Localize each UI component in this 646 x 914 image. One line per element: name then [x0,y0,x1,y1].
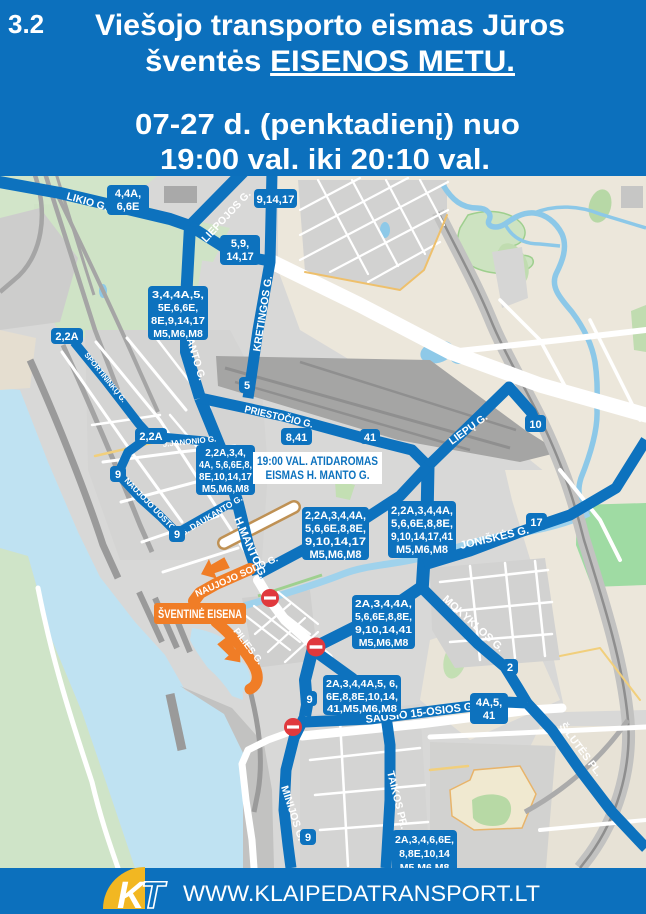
svg-text:M5,M6,M8: M5,M6,M8 [396,544,448,556]
svg-text:6,6E: 6,6E [117,201,140,213]
svg-text:M5,M6,M8: M5,M6,M8 [153,328,203,340]
svg-text:5,6,6E,8,8E,: 5,6,6E,8,8E, [305,523,366,535]
svg-text:8,8E,10,14: 8,8E,10,14 [399,848,450,860]
svg-text:8E,9,14,17: 8E,9,14,17 [151,315,205,327]
svg-text:EISMAS H. MANTO G.: EISMAS H. MANTO G. [266,470,370,482]
svg-text:5,6,6E,8,8E,: 5,6,6E,8,8E, [391,518,453,530]
svg-text:2A,3,4,4A,: 2A,3,4,4A, [355,598,412,610]
svg-text:2,2A: 2,2A [55,331,78,343]
svg-text:9,10,14,17: 9,10,14,17 [305,536,366,548]
svg-text:2A,3,4,6,6E,: 2A,3,4,6,6E, [395,834,454,846]
svg-text:ŠVENTINĖ EISENA: ŠVENTINĖ EISENA [158,606,242,621]
svg-text:T: T [141,875,167,914]
svg-text:8,41: 8,41 [286,432,307,444]
svg-text:2,2A,3,4,: 2,2A,3,4, [205,448,246,459]
svg-text:2,2A,3,4,4A,: 2,2A,3,4,4A, [391,505,453,517]
svg-text:5,6,6E,8,8E,: 5,6,6E,8,8E, [355,611,412,623]
svg-text:šventės EISENOS METU.: šventės EISENOS METU. [145,45,515,78]
svg-text:9: 9 [115,469,121,481]
svg-text:17: 17 [530,517,542,529]
svg-text:41: 41 [483,710,495,722]
svg-text:3.2: 3.2 [8,9,44,39]
svg-text:4,4A,: 4,4A, [115,188,141,200]
svg-text:14,17: 14,17 [226,251,254,263]
svg-text:9: 9 [306,694,312,706]
svg-text:19:00 val. iki 20:10 val.: 19:00 val. iki 20:10 val. [160,144,490,176]
svg-text:2: 2 [507,662,513,674]
svg-text:5: 5 [244,380,250,392]
svg-text:2,2A: 2,2A [139,431,162,443]
svg-text:M5,M6,M8: M5,M6,M8 [310,549,362,561]
svg-text:WWW.KLAIPEDATRANSPORT.LT: WWW.KLAIPEDATRANSPORT.LT [183,881,540,906]
svg-text:Viešojo transporto eismas Jūro: Viešojo transporto eismas Jūros [95,9,565,42]
svg-text:41: 41 [364,432,376,444]
svg-text:8E,10,14,17: 8E,10,14,17 [199,472,252,483]
svg-text:6E,8,8E,10,14,: 6E,8,8E,10,14, [326,691,398,703]
svg-text:41,M5,M6,M8: 41,M5,M6,M8 [327,703,397,715]
svg-text:19:00 VAL. ATIDAROMAS: 19:00 VAL. ATIDAROMAS [257,456,378,468]
svg-text:9,14,17: 9,14,17 [257,194,295,206]
svg-text:M5,M6,M8: M5,M6,M8 [359,637,409,649]
svg-text:4A, 5,6,6E,8,: 4A, 5,6,6E,8, [199,460,252,471]
svg-text:9,10,14,41: 9,10,14,41 [355,624,412,636]
svg-text:3,4,4A,5,: 3,4,4A,5, [152,289,204,301]
svg-text:9: 9 [305,832,311,844]
svg-text:9,10,14,17,41: 9,10,14,17,41 [391,531,453,543]
svg-text:9: 9 [174,529,180,541]
svg-text:M5,M6,M8: M5,M6,M8 [202,484,250,495]
svg-text:5,9,: 5,9, [231,238,249,250]
svg-text:07-27 d. (penktadienį) nuo: 07-27 d. (penktadienį) nuo [135,109,520,141]
svg-text:2A,3,4,4A,5, 6,: 2A,3,4,4A,5, 6, [326,678,398,690]
svg-text:10: 10 [529,419,541,431]
svg-text:4A,5,: 4A,5, [476,697,502,709]
svg-text:2,2A,3,4,4A,: 2,2A,3,4,4A, [305,510,366,522]
svg-text:5E,6,6E,: 5E,6,6E, [158,302,198,314]
